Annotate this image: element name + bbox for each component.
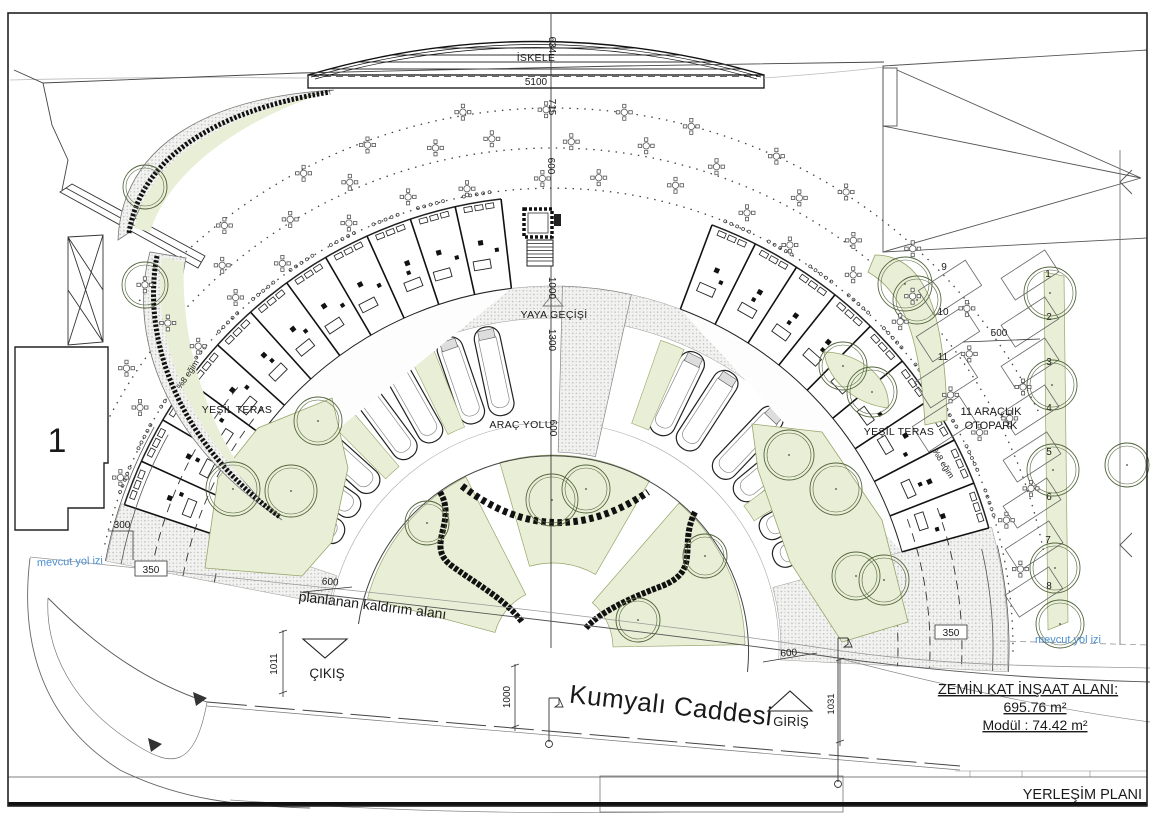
table-icon	[119, 360, 135, 376]
pedestrian-crossing-label: YAYA GEÇİŞİ	[521, 308, 588, 321]
pier-deck	[10, 20, 884, 88]
module-unit	[288, 253, 355, 334]
table-icon	[1023, 480, 1039, 496]
dim-pier-width: 5100	[525, 77, 548, 88]
parking-number: 8	[1046, 581, 1052, 592]
module-wall	[455, 207, 474, 295]
parking-number: 11	[938, 352, 949, 363]
dim-1031: 1031	[826, 693, 837, 714]
parking-number: 5	[1046, 447, 1052, 458]
dim-1011: 1011	[269, 653, 280, 675]
parking-area-label-2: OTOPARK	[965, 420, 1018, 432]
module-wall	[680, 225, 712, 309]
table-icon	[791, 190, 807, 206]
table-icon	[214, 257, 230, 273]
table-icon	[683, 118, 699, 134]
stair-core	[524, 209, 561, 266]
street-name-label: Kumyalı Caddesi	[568, 679, 774, 732]
entrance-label: GİRİŞ	[773, 714, 809, 729]
vehicle-road-label: ARAÇ YOLU	[489, 419, 552, 431]
module-wall	[501, 199, 511, 288]
parking-number: 1	[1045, 269, 1051, 280]
dim-600-right: 600	[780, 647, 798, 659]
exit-label: ÇIKIŞ	[309, 666, 344, 681]
dim-715: 715	[546, 99, 557, 116]
dim-500: 500	[991, 328, 1008, 339]
table-icon	[274, 255, 290, 271]
info-heading: ZEMİN KAT İNŞAAT ALANI:	[938, 680, 1118, 698]
building-number: 1	[48, 422, 67, 460]
table-icon	[428, 140, 444, 156]
table-icon	[400, 189, 416, 205]
table-icon	[132, 400, 148, 416]
existing-road-right-label: mevcut yol izi	[1035, 634, 1101, 646]
dim-1000-module: 1000	[546, 277, 557, 300]
table-icon	[591, 170, 607, 186]
green-terrace-right-label: YEŞİL TERAS	[864, 425, 934, 438]
module-unit	[415, 199, 465, 281]
module-unit	[371, 213, 427, 295]
green-terrace-left	[205, 398, 348, 576]
module-unit	[251, 280, 322, 358]
parking-number: 6	[1046, 492, 1052, 503]
table-icon	[216, 218, 232, 234]
parking-number: 2	[1046, 312, 1052, 323]
module-unit	[328, 231, 390, 313]
tree-icon	[1105, 443, 1149, 487]
table-icon	[961, 346, 977, 362]
table-icon	[768, 148, 784, 164]
green-terrace-left-label: YEŞİL TERAS	[202, 403, 272, 416]
info-module-value: Modül : 74.42 m²	[982, 717, 1087, 733]
module-wall	[890, 483, 974, 516]
table-icon	[959, 300, 975, 316]
table-icon	[282, 211, 298, 227]
module-unit	[693, 219, 751, 301]
parking-area-label-1: 11 ARAÇLIK	[961, 406, 1023, 418]
info-area-value: 695.76 m²	[1003, 699, 1066, 715]
module-unit	[216, 311, 291, 386]
module-wall	[410, 219, 438, 304]
dim-1300: 1300	[546, 329, 557, 352]
info-panel: ZEMİN KAT İNŞAAT ALANI: 695.76 m² Modül …	[938, 680, 1118, 733]
table-icon	[845, 232, 861, 248]
drawing-title: YERLEŞİM PLANI	[1023, 785, 1142, 803]
dim-pier-depth: 634	[546, 37, 557, 54]
table-icon	[668, 177, 684, 193]
table-icon	[484, 131, 500, 147]
parking-number: 4	[1046, 403, 1052, 414]
table-icon	[459, 181, 475, 197]
table-icon	[845, 267, 861, 283]
table-icon	[342, 174, 358, 190]
dim-300: 300	[114, 520, 131, 531]
table-icon	[341, 215, 357, 231]
exit-arrow-icon	[303, 639, 347, 658]
dim-1000-street: 1000	[502, 685, 513, 708]
table-icon	[709, 159, 725, 175]
table-icon	[638, 138, 654, 154]
dim-350-left: 350	[143, 565, 160, 576]
entrance-arrow-icon	[768, 691, 812, 711]
table-icon	[998, 512, 1014, 528]
module-unit	[730, 239, 794, 320]
table-icon	[228, 290, 244, 306]
table-icon	[360, 137, 376, 153]
table-icon	[190, 338, 206, 354]
table-icon	[905, 241, 921, 257]
existing-building-1: 1	[15, 347, 108, 530]
table-icon	[739, 205, 755, 221]
dim-350-right: 350	[943, 628, 960, 639]
parking-number: 3	[1046, 357, 1052, 368]
table-icon	[112, 470, 128, 486]
ring-complex	[100, 108, 1068, 672]
dim-600-terrace: 600	[545, 158, 556, 175]
module-unit	[765, 264, 834, 344]
site-plan-svg: 1	[0, 0, 1153, 813]
dim-600-sidewalk: 600	[321, 576, 339, 588]
table-icon	[563, 134, 579, 150]
parking-number: 9	[941, 262, 947, 273]
title-block: YERLEŞİM PLANI	[8, 771, 1147, 806]
table-icon	[455, 104, 471, 120]
table-icon	[616, 104, 632, 120]
drawing-sheet: 1	[0, 0, 1153, 813]
existing-road-left-label: mevcut yol izi	[37, 555, 103, 569]
table-icon	[838, 184, 854, 200]
table-icon	[296, 165, 312, 181]
module-unit	[462, 190, 504, 270]
